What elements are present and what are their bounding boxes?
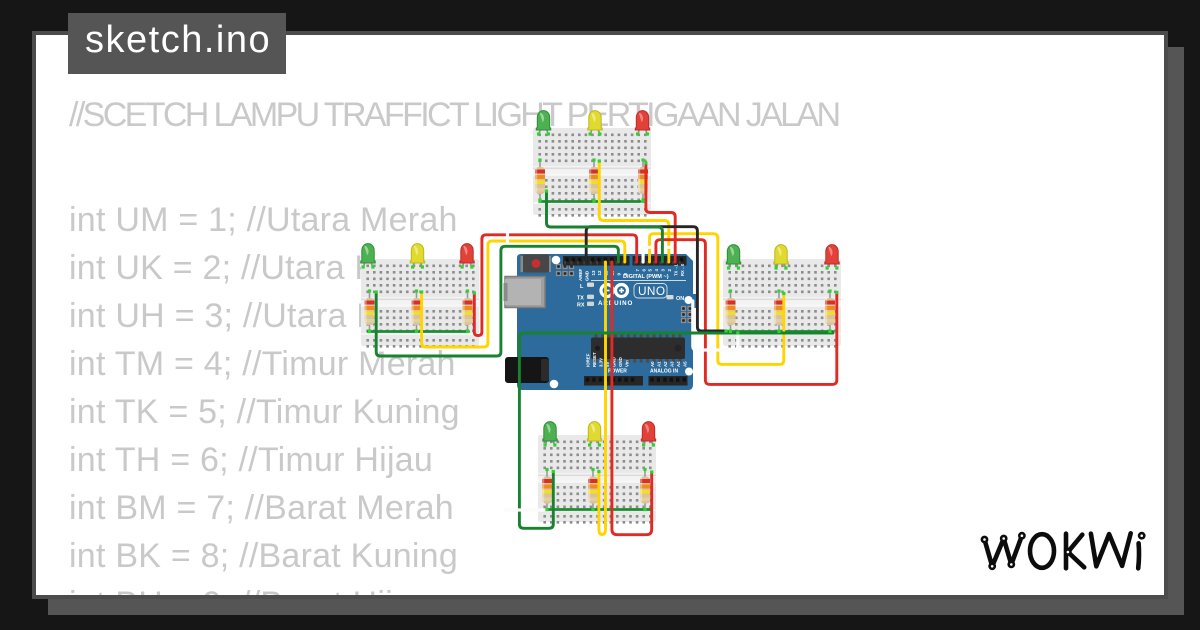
- svg-text:3.3V: 3.3V: [599, 358, 604, 367]
- svg-text:DIGITAL (PWM ~): DIGITAL (PWM ~): [623, 274, 669, 280]
- svg-text:TX→1: TX→1: [673, 263, 678, 276]
- svg-text:GND: GND: [584, 270, 589, 281]
- svg-text:A0: A0: [650, 361, 655, 367]
- svg-text:Vin: Vin: [624, 360, 629, 367]
- svg-text:RESET: RESET: [592, 352, 597, 367]
- svg-text:AREF: AREF: [578, 268, 583, 281]
- svg-text:A2: A2: [663, 361, 668, 367]
- svg-text:ANALOG IN: ANALOG IN: [650, 369, 678, 375]
- svg-text:UNO: UNO: [638, 284, 665, 298]
- svg-text:A4: A4: [676, 361, 681, 367]
- svg-text:IOREF: IOREF: [586, 353, 591, 367]
- svg-text:RX: RX: [577, 303, 585, 309]
- svg-text:A5: A5: [682, 361, 687, 367]
- svg-text:RX←0: RX←0: [680, 263, 685, 276]
- svg-text:A1: A1: [657, 361, 662, 367]
- svg-text:TX: TX: [577, 296, 584, 302]
- svg-text:ON: ON: [676, 296, 684, 302]
- svg-text:12: 12: [597, 270, 602, 276]
- svg-text:ARDUINO: ARDUINO: [598, 300, 633, 307]
- svg-text:A3: A3: [670, 361, 675, 367]
- svg-text:13: 13: [591, 270, 596, 276]
- svg-text:GND: GND: [618, 357, 623, 367]
